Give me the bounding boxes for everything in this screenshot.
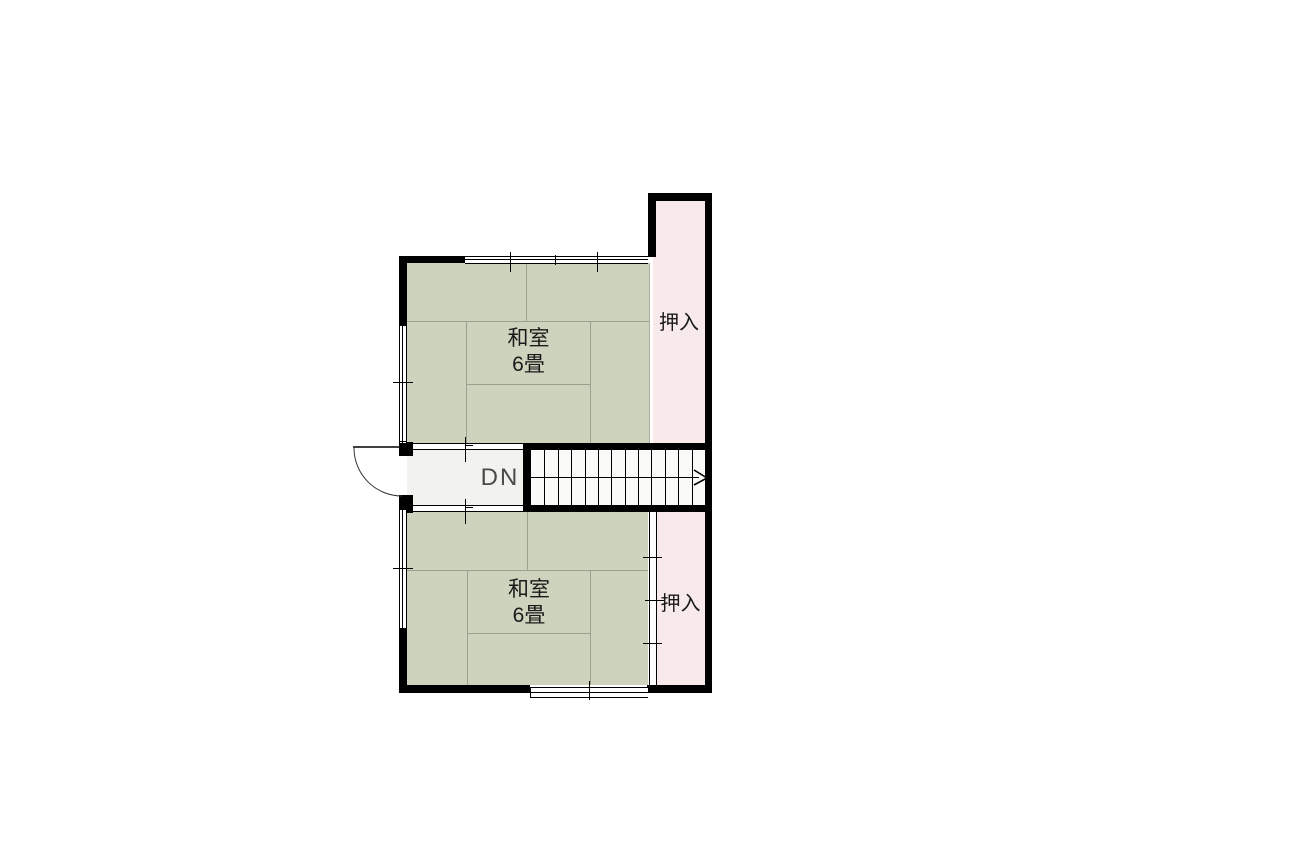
upper-room-label: 和室 6畳 bbox=[466, 324, 591, 379]
upper-closet-label: 押入 bbox=[653, 307, 705, 333]
lower-room-label: 和室 6畳 bbox=[467, 575, 591, 630]
room-name: 和室 bbox=[508, 326, 550, 352]
lower-closet-label: 押入 bbox=[656, 588, 705, 614]
room-size: 6畳 bbox=[513, 603, 546, 629]
closet-text: 押入 bbox=[661, 587, 701, 616]
room-size: 6畳 bbox=[512, 352, 545, 378]
floor-plan-canvas: 和室 6畳 和室 6畳 押入 押入 DN bbox=[0, 0, 1300, 860]
door-swing-icon bbox=[0, 0, 1300, 860]
stairs-down-label: DN bbox=[468, 463, 532, 493]
room-name: 和室 bbox=[508, 577, 550, 603]
closet-text: 押入 bbox=[659, 306, 699, 335]
dn-text: DN bbox=[481, 464, 520, 492]
